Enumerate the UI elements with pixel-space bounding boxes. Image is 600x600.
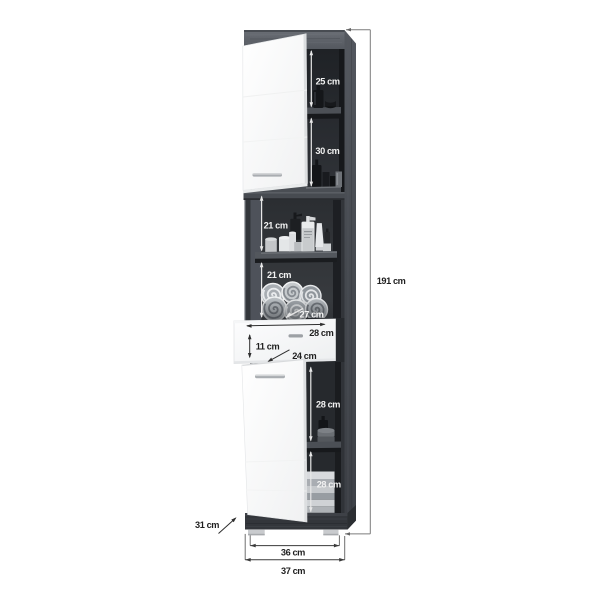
svg-text:191 cm: 191 cm [377,276,406,286]
svg-text:37 cm: 37 cm [281,566,305,576]
svg-text:36 cm: 36 cm [281,547,305,557]
svg-text:28 cm: 28 cm [309,328,333,338]
svg-text:24 cm: 24 cm [292,351,316,361]
svg-text:30 cm: 30 cm [315,146,339,156]
svg-text:28 cm: 28 cm [317,479,341,489]
svg-text:21 cm: 21 cm [267,270,291,280]
svg-text:21 cm: 21 cm [264,221,288,231]
svg-text:25 cm: 25 cm [316,76,340,86]
svg-text:11 cm: 11 cm [256,341,280,351]
svg-text:27 cm: 27 cm [300,309,324,319]
svg-text:28 cm: 28 cm [316,400,340,410]
svg-text:31 cm: 31 cm [195,520,219,530]
